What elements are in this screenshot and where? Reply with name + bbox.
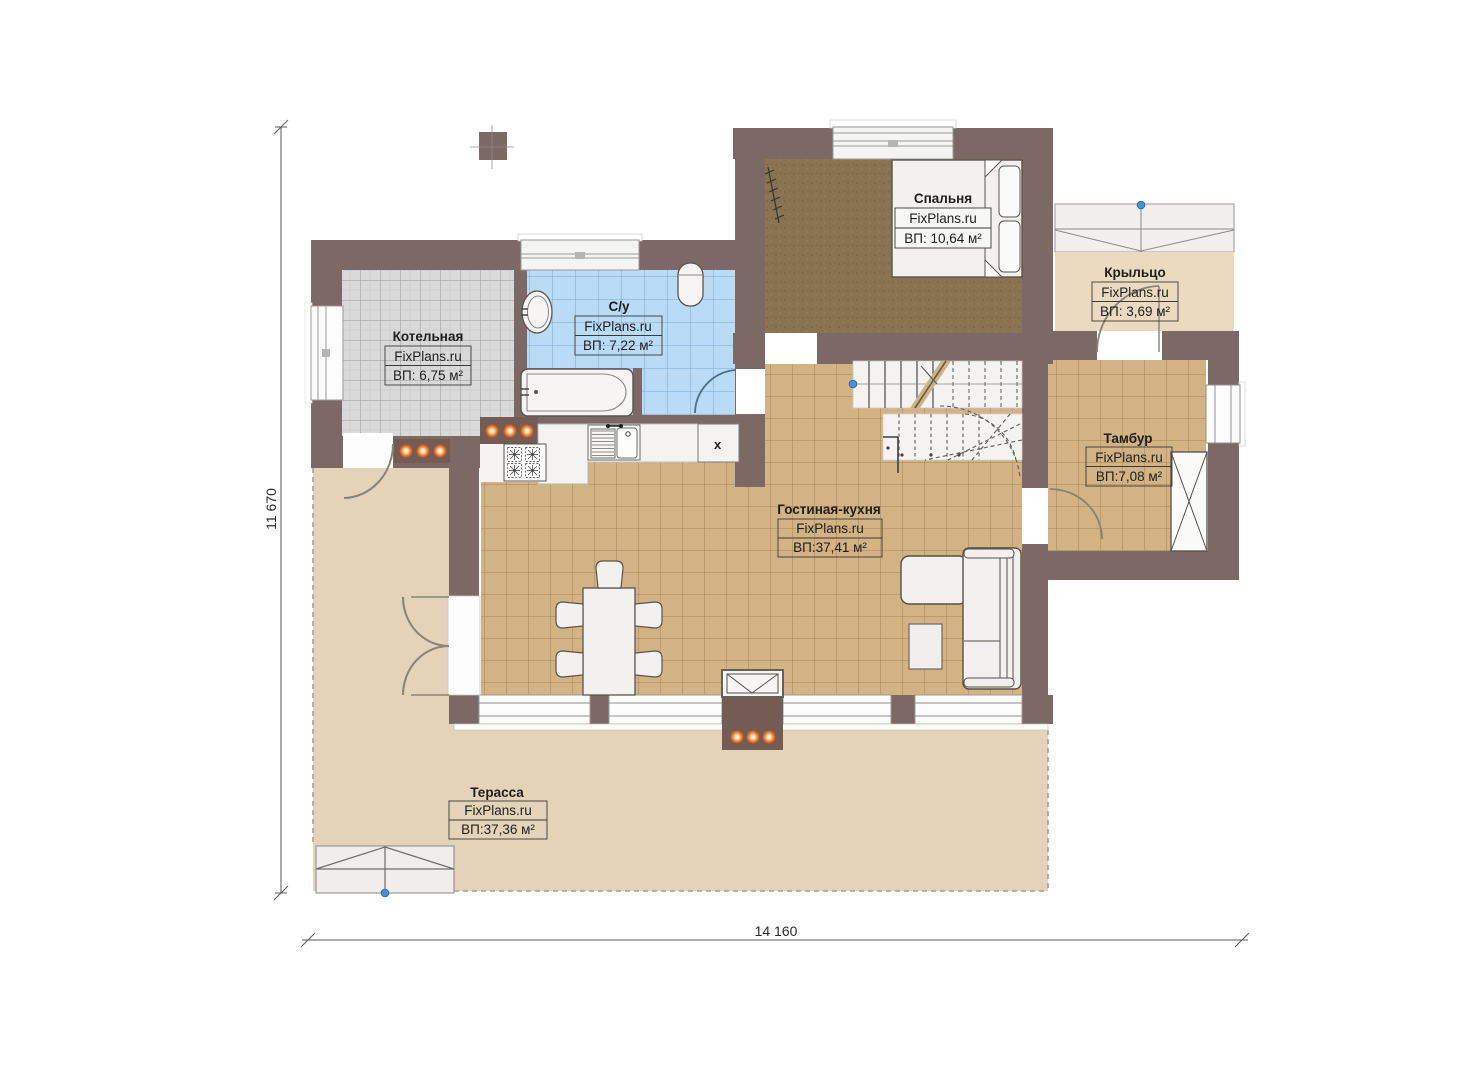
svg-text:11 670: 11 670 bbox=[263, 488, 279, 530]
svg-text:Терасса: Терасса bbox=[470, 785, 524, 800]
svg-text:Гостиная-кухня: Гостиная-кухня bbox=[777, 502, 880, 517]
svg-text:x: x bbox=[714, 437, 722, 452]
svg-text:Крыльцо: Крыльцо bbox=[1104, 265, 1165, 280]
svg-text:FixPlans.ru: FixPlans.ru bbox=[1095, 450, 1163, 465]
svg-text:ВП: 10,64 м²: ВП: 10,64 м² bbox=[904, 231, 982, 246]
svg-text:FixPlans.ru: FixPlans.ru bbox=[394, 349, 462, 364]
svg-text:ВП: 3,69 м²: ВП: 3,69 м² bbox=[1100, 304, 1171, 319]
svg-text:FixPlans.ru: FixPlans.ru bbox=[796, 521, 864, 536]
svg-text:ВП:37,36 м²: ВП:37,36 м² bbox=[461, 822, 535, 837]
svg-text:Котельная: Котельная bbox=[393, 329, 464, 344]
svg-text:Спальня: Спальня bbox=[914, 191, 972, 206]
svg-text:FixPlans.ru: FixPlans.ru bbox=[464, 803, 532, 818]
svg-text:ВП:7,08 м²: ВП:7,08 м² bbox=[1096, 469, 1163, 484]
svg-text:ВП: 6,75 м²: ВП: 6,75 м² bbox=[393, 368, 464, 383]
svg-text:FixPlans.ru: FixPlans.ru bbox=[1101, 285, 1169, 300]
svg-text:FixPlans.ru: FixPlans.ru bbox=[584, 319, 652, 334]
svg-text:ВП:37,41 м²: ВП:37,41 м² bbox=[793, 540, 867, 555]
svg-text:14 160: 14 160 bbox=[755, 923, 798, 939]
svg-text:ВП: 7,22 м²: ВП: 7,22 м² bbox=[583, 338, 654, 353]
svg-text:С/у: С/у bbox=[608, 299, 630, 314]
svg-text:Тамбур: Тамбур bbox=[1104, 431, 1153, 446]
svg-text:FixPlans.ru: FixPlans.ru bbox=[909, 211, 977, 226]
